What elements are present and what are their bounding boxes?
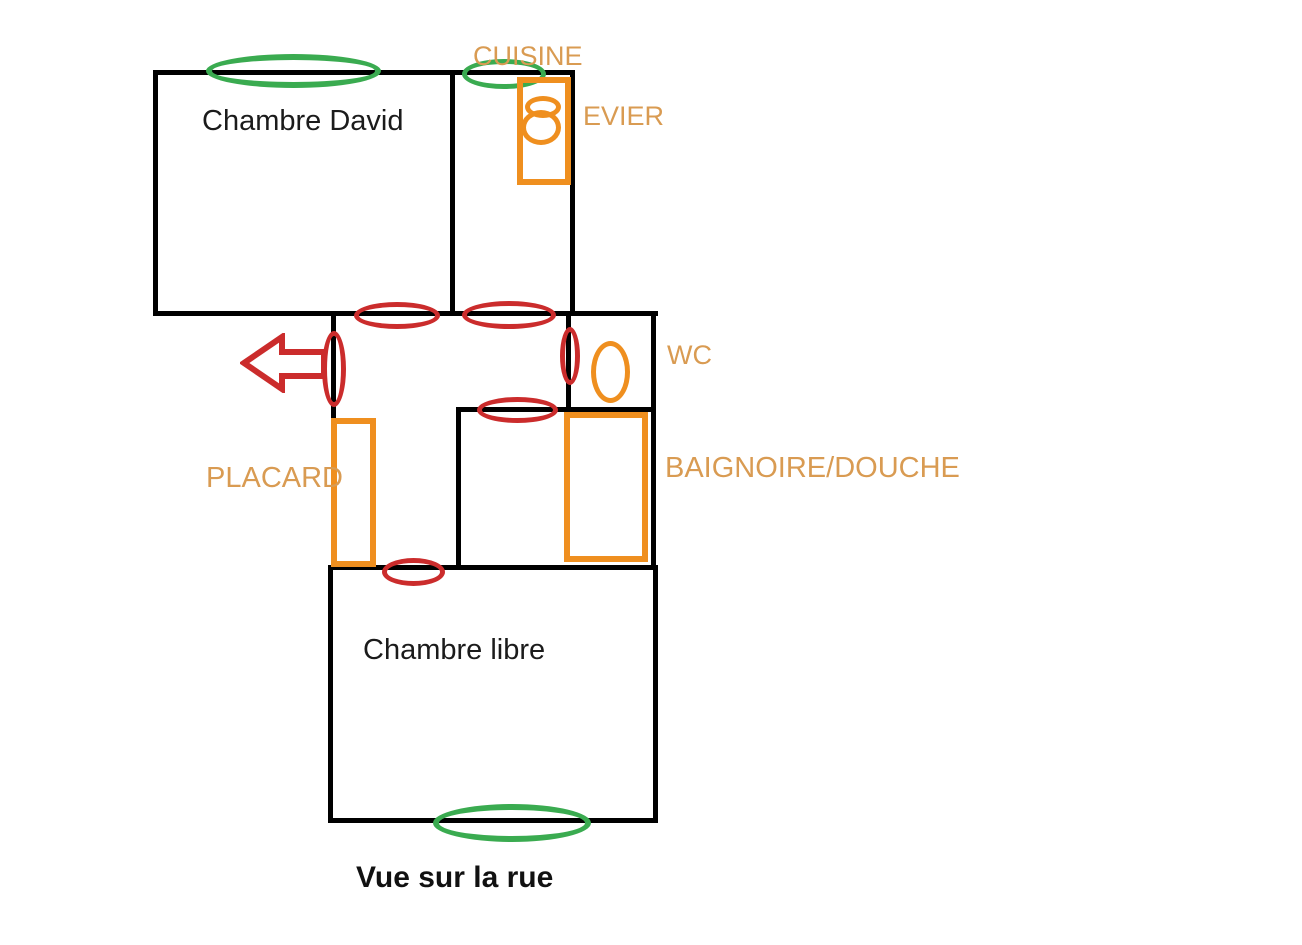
evier-basin-round-icon [521,110,561,145]
room-label-chambre-david: Chambre David [202,106,403,138]
exit-arrow-icon [240,333,328,393]
fixture-label-baignoire-douche: BAIGNOIRE/DOUCHE [665,453,960,485]
toilet-bowl-icon [591,341,630,403]
door-cuisine-icon [462,301,556,329]
room-label-cuisine: CUISINE [473,42,583,72]
floor-plan: Chambre David CUISINE EVIER WC PLACARD B… [0,0,1302,945]
window-chambre-libre-icon [433,804,591,842]
door-chambre-libre-icon [382,558,445,586]
door-baignoire-icon [477,397,558,423]
room-chambre-libre-walls [328,565,658,823]
room-label-chambre-libre: Chambre libre [363,635,545,667]
street-view-caption: Vue sur la rue [356,861,553,894]
baignoire-tub-icon [564,412,648,562]
door-wc-icon [560,327,580,385]
room-label-wc: WC [667,341,712,371]
fixture-label-placard: PLACARD [206,463,343,495]
window-chambre-david-icon [206,54,381,88]
door-chambre-david-icon [354,302,440,329]
fixture-label-evier: EVIER [583,102,664,132]
